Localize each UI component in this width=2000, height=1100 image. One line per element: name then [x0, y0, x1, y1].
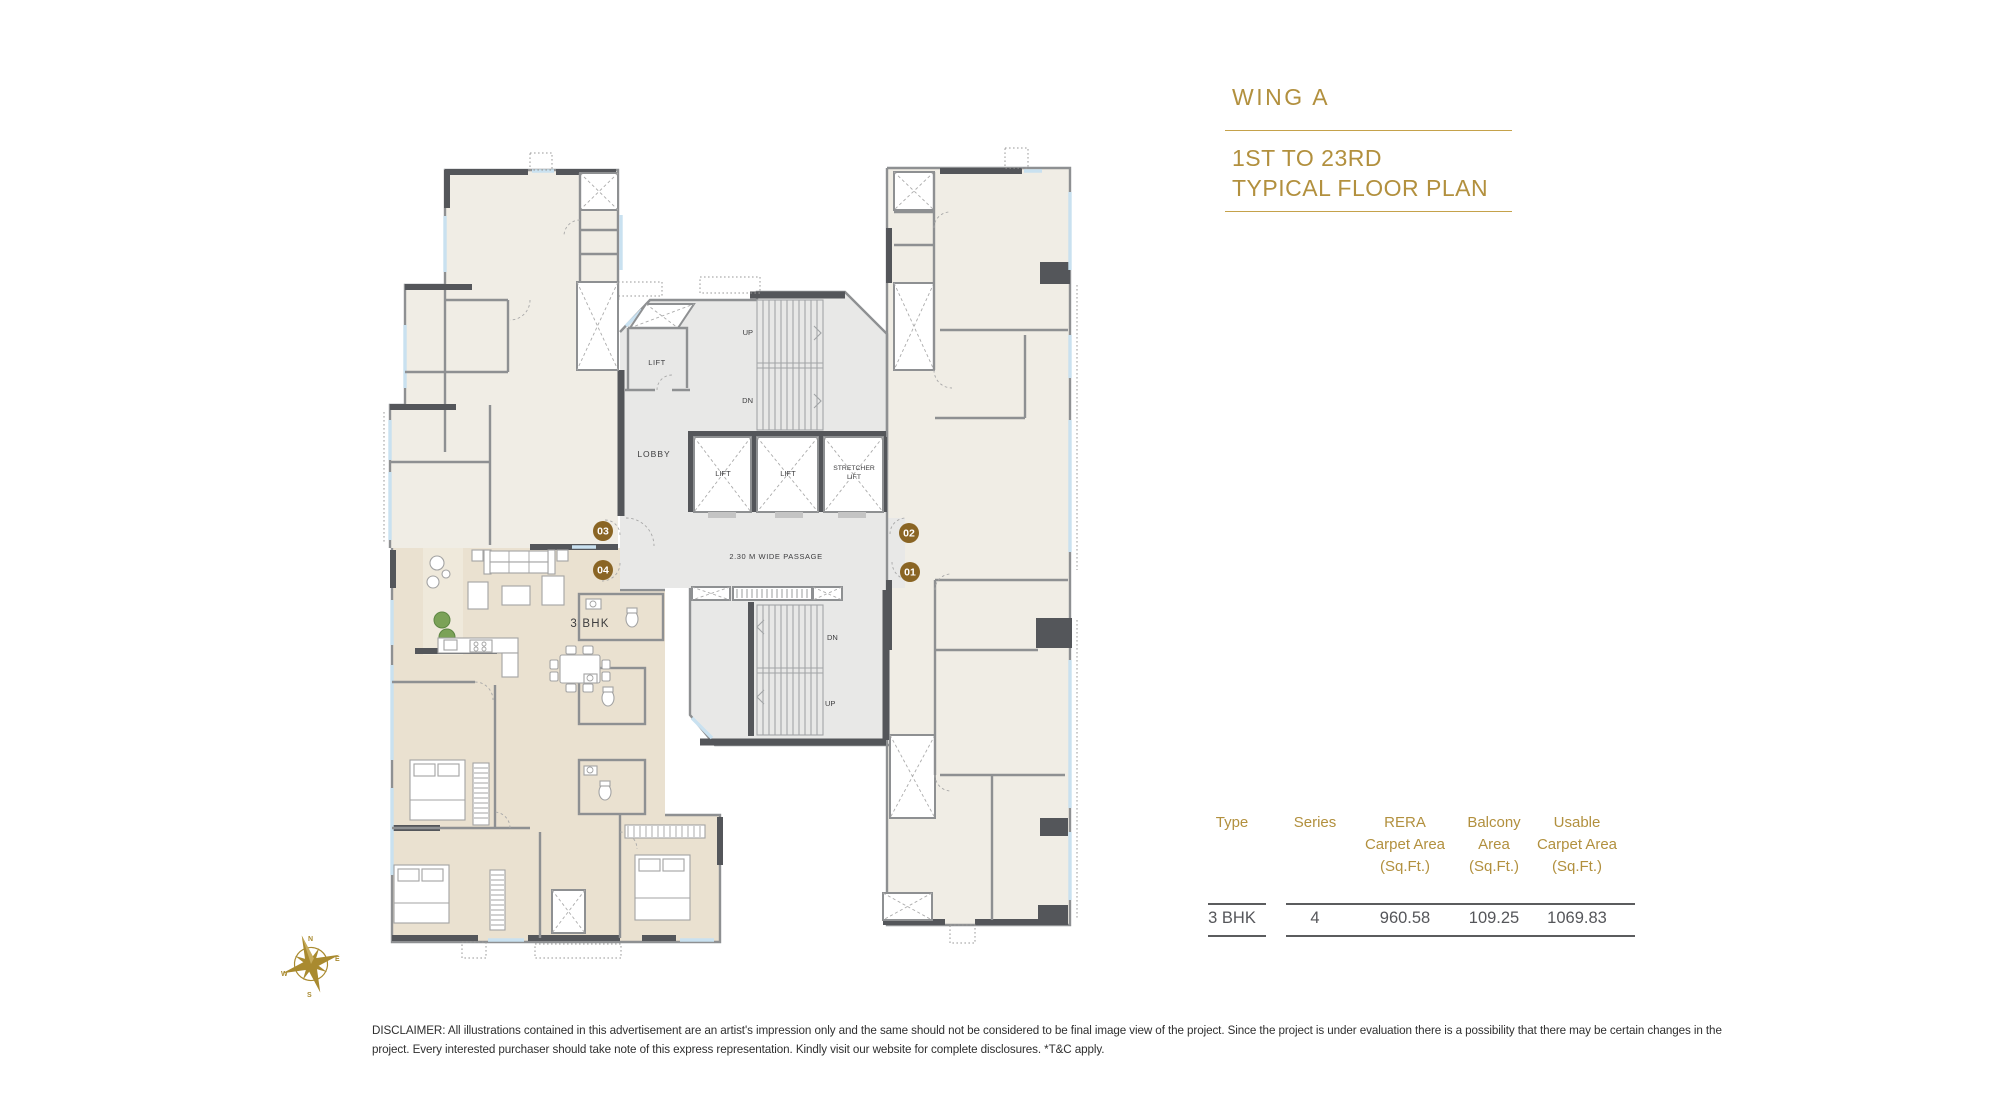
subtitle-divider: [1225, 211, 1512, 212]
stretcher-lift-label-line2: LIFT: [847, 474, 861, 481]
unit-03-badge: 03: [597, 526, 609, 538]
compass-e-label: E: [335, 956, 340, 963]
col-header-series: Series: [1294, 812, 1337, 834]
cell-rera-carpet-area: 960.58: [1380, 909, 1430, 928]
cell-usable-carpet-area: 1069.83: [1547, 909, 1607, 928]
floor-subtitle-line2: TYPICAL FLOOR PLAN: [1232, 174, 1488, 204]
stair-bottom-dn-label: DN: [827, 633, 838, 642]
disclaimer-line2: project. Every interested purchaser shou…: [372, 1040, 1722, 1059]
unit-02-badge: 02: [903, 528, 915, 540]
stair-top-up-label: UP: [743, 328, 753, 337]
title-block: WING A: [1232, 84, 1330, 111]
passage-label: 2.30 M WIDE PASSAGE: [729, 552, 822, 561]
compass-n-label: N: [308, 936, 313, 943]
brochure-page: WING A 1ST TO 23RD TYPICAL FLOOR PLAN: [0, 0, 2000, 1100]
unit-type-label: 3 BHK: [570, 618, 609, 630]
col-header-type: Type: [1216, 812, 1249, 834]
col-header-rera-carpet-area: RERA Carpet Area (Sq.Ft.): [1365, 812, 1445, 878]
floor-plan: LIFT UP DN LOBBY LIFT LIFT STRETCHER LIF…: [380, 120, 1080, 980]
unit-01-badge: 01: [904, 567, 916, 579]
cell-balcony-area: 109.25: [1469, 909, 1519, 928]
cell-type: 3 BHK: [1208, 909, 1256, 928]
floor-subtitle: 1ST TO 23RD TYPICAL FLOOR PLAN: [1232, 144, 1488, 203]
col-header-balcony-area: Balcony Area (Sq.Ft.): [1467, 812, 1520, 878]
stretcher-lift-label-line1: STRETCHER: [833, 465, 875, 472]
compass-rose-icon: N E W S: [277, 930, 345, 998]
title-divider: [1225, 130, 1512, 131]
floor-subtitle-line1: 1ST TO 23RD: [1232, 144, 1488, 174]
lift1-label: LIFT: [715, 469, 731, 478]
wing-title: WING A: [1232, 84, 1330, 111]
compass-w-label: W: [281, 971, 288, 978]
lift2-label: LIFT: [780, 469, 796, 478]
cell-series: 4: [1310, 909, 1319, 928]
col-header-usable-carpet-area: Usable Carpet Area (Sq.Ft.): [1537, 812, 1617, 878]
disclaimer: DISCLAIMER: All illustrations contained …: [372, 1021, 1808, 1059]
lobby-label: LOBBY: [637, 449, 670, 459]
stair-top-dn-label: DN: [742, 396, 753, 405]
unit-04-badge: 04: [597, 565, 609, 577]
disclaimer-line1: DISCLAIMER: All illustrations contained …: [372, 1021, 1722, 1040]
lift-room-label: LIFT: [648, 358, 665, 367]
compass-s-label: S: [307, 992, 312, 998]
stair-bottom-up-label: UP: [825, 699, 835, 708]
